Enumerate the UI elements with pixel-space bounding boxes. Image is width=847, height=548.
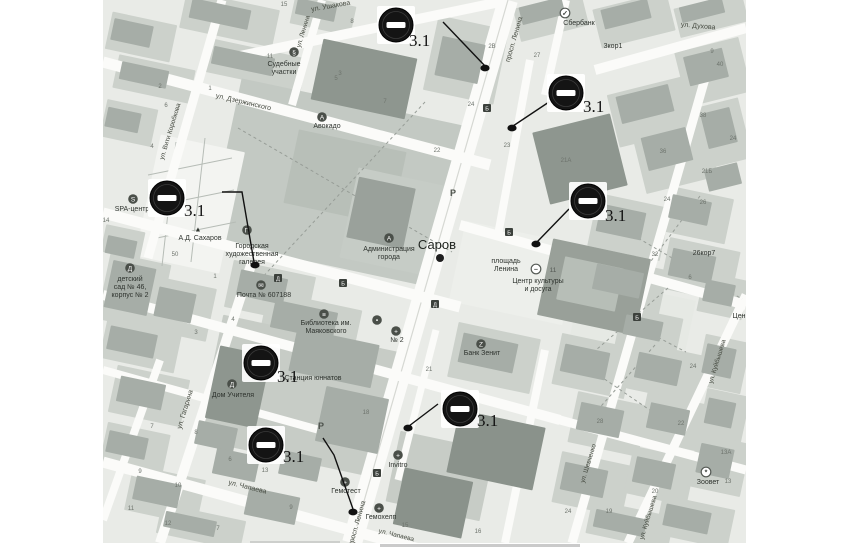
building-number: 10 xyxy=(175,483,182,489)
poi-label: Почта № 607188 xyxy=(237,292,291,299)
building-number: 13А xyxy=(721,450,732,456)
text: Д xyxy=(230,381,235,388)
poi-label: Администрация xyxy=(363,246,415,253)
building-number: 13 xyxy=(262,468,269,474)
building-number: 28 xyxy=(597,419,604,425)
poi-label: Библиотека им. xyxy=(301,319,352,327)
administration-icon: А xyxy=(384,233,394,243)
bus-stop-icon: Б xyxy=(483,104,491,112)
poi-lenin-square: площадьЛенина xyxy=(491,258,521,273)
text: Д xyxy=(276,276,280,282)
building-number: 22 xyxy=(434,148,441,154)
poi-label: Дом Учителя xyxy=(212,392,254,399)
building-number: 24 xyxy=(664,197,671,203)
poi-label: участки xyxy=(272,69,297,76)
text: ✓ xyxy=(562,11,568,18)
sign-bar xyxy=(158,195,177,201)
sign-bar xyxy=(451,406,470,412)
zoovet-icon: * xyxy=(701,467,711,477)
building-number: 24 xyxy=(730,136,737,142)
building-number: 20 xyxy=(652,489,659,495)
text: Б xyxy=(507,230,511,236)
scan-smudge xyxy=(380,544,580,547)
scanned-map-page: ул. Ушаковаул. Дзержинскогоул. Духовапро… xyxy=(0,0,847,548)
text: – xyxy=(534,267,538,274)
building-number: 21Б xyxy=(702,169,713,175)
building-number: 22 xyxy=(678,421,685,427)
poi-clipped-center: Цен xyxy=(733,313,746,320)
invitro-icon: + xyxy=(393,450,403,460)
poi-label: А.Д. Сахаров xyxy=(178,235,221,242)
sign-location-dot xyxy=(348,509,357,516)
avokado-icon: А xyxy=(317,112,327,122)
sign-number-label: 3.1 xyxy=(477,411,498,430)
building-number: 2В xyxy=(488,44,495,50)
poi-label: Судебные xyxy=(267,60,300,68)
sign-bar xyxy=(387,22,406,28)
scan-smudge xyxy=(250,541,340,543)
poi-label: корпус № 2 xyxy=(112,292,149,299)
building-number: 24 xyxy=(468,102,475,108)
building-number: 40 xyxy=(717,62,724,68)
text: § xyxy=(292,49,296,56)
poi-label: Гемохелп xyxy=(366,514,397,521)
sign-number-label: 3.1 xyxy=(283,447,304,466)
poi-label: сад № 46, xyxy=(114,284,147,291)
text: * xyxy=(705,470,708,477)
sign-location-dot xyxy=(480,65,489,72)
poi-number: 11 xyxy=(550,267,557,274)
poi-shop-dot: • xyxy=(372,315,382,325)
poi-label: 26кор7 xyxy=(693,250,716,257)
spa-icon: S xyxy=(128,194,138,204)
building-number: 15 xyxy=(281,2,288,8)
pharmacy-2-icon: + xyxy=(391,326,401,336)
bank-zenit-icon: Z xyxy=(476,339,486,349)
text: Д xyxy=(128,265,133,272)
city-dot xyxy=(436,254,444,262)
sign-location-dot xyxy=(403,425,412,432)
poi-label: детский xyxy=(117,275,142,283)
building-number: 15 xyxy=(402,523,409,529)
teachers-house-icon: Д xyxy=(227,379,237,389)
city-label: Саров xyxy=(418,237,456,252)
text: Z xyxy=(479,341,483,348)
building-number: 27 xyxy=(534,53,541,59)
sakharov-icon: ▲ xyxy=(195,227,202,234)
sign-location-dot xyxy=(250,262,259,269)
building-number: 21 xyxy=(426,367,433,373)
parking-icon: Р xyxy=(318,421,324,431)
text: + xyxy=(396,452,400,459)
text: ≡ xyxy=(322,311,326,318)
poi-label: 3кор1 xyxy=(604,43,623,50)
sign-location-dot xyxy=(531,241,540,248)
building-number: 21А xyxy=(561,158,572,164)
sign-number-label: 3.1 xyxy=(409,31,430,50)
sign-bar xyxy=(257,442,276,448)
bus-stop-icon: Д xyxy=(431,300,439,308)
kindergarten-icon: Д xyxy=(125,263,135,273)
text: А xyxy=(320,114,325,121)
text: + xyxy=(394,328,398,335)
poi-label: Invitro xyxy=(388,462,407,469)
building-number: 16 xyxy=(475,529,482,535)
building-number: 38 xyxy=(700,113,707,119)
building-number: 12 xyxy=(165,521,172,527)
text: А xyxy=(387,235,392,242)
text: Б xyxy=(635,315,639,321)
sign-bar xyxy=(579,198,598,204)
map-canvas: ул. Ушаковаул. Дзержинскогоул. Духовапро… xyxy=(0,0,847,548)
text: Б xyxy=(485,106,489,112)
post-office-icon: ✉ xyxy=(256,280,266,290)
sign-number-label: 3.1 xyxy=(184,201,205,220)
building-number: 24 xyxy=(565,509,572,515)
sberbank-icon: ✓ xyxy=(560,8,570,18)
building-number: 18 xyxy=(363,410,370,416)
poi-label: SPA-центр xyxy=(115,206,150,213)
text: S xyxy=(131,196,136,203)
building-number: 13 xyxy=(725,479,732,485)
poi-bldg-3kor1: 3кор1 xyxy=(604,43,623,50)
building-number: 36 xyxy=(660,149,667,155)
culture-center-icon: – xyxy=(531,264,541,274)
building-number: 11 xyxy=(267,54,274,60)
bus-stop-icon: Б xyxy=(505,228,513,236)
poi-bldg-26kor7: 26кор7 xyxy=(693,250,716,257)
parking-icon: Р xyxy=(450,188,456,198)
poi-label: Сбербанк xyxy=(563,19,595,27)
text: ▲ xyxy=(195,227,202,234)
sign-location-dot xyxy=(507,125,516,132)
bus-stop-icon: Б xyxy=(633,313,641,321)
poi-label: Банк Зенит xyxy=(464,350,501,357)
building-number: 14 xyxy=(103,218,110,224)
building-number: 23 xyxy=(504,143,511,149)
bus-stop-icon: Д xyxy=(274,274,282,282)
poi-label: Зоовет xyxy=(697,479,720,486)
sign-number-label: 3.1 xyxy=(277,367,298,386)
building-number: 24 xyxy=(690,364,697,370)
building-number: 11 xyxy=(128,506,135,512)
text: ✉ xyxy=(258,282,264,289)
bus-stop-icon: Б xyxy=(339,279,347,287)
building-number: 26 xyxy=(700,200,707,206)
poi-label: и досуга xyxy=(524,286,551,293)
sign-number-label: 3.1 xyxy=(583,97,604,116)
building-number: 19 xyxy=(606,509,613,515)
poi-label: Маяковского xyxy=(305,328,346,335)
gemohelp-icon: + xyxy=(374,503,384,513)
building-number: 50 xyxy=(172,252,179,258)
map-svg: ул. Ушаковаул. Дзержинскогоул. Духовапро… xyxy=(0,0,847,548)
text: Д xyxy=(433,302,437,308)
text: Б xyxy=(375,471,379,477)
bus-stop-icon: Б xyxy=(373,469,381,477)
building-number: 32 xyxy=(652,252,659,258)
sign-bar xyxy=(252,360,271,366)
poi-label: № 2 xyxy=(390,337,403,344)
court-icon: § xyxy=(289,47,299,57)
gallery-icon: П xyxy=(242,225,252,235)
poi-label: площадь xyxy=(491,258,521,265)
poi-label: Ленина xyxy=(494,266,518,273)
text: + xyxy=(377,505,381,512)
library-icon: ≡ xyxy=(319,309,329,319)
text: Б xyxy=(341,281,345,287)
poi-label: города xyxy=(378,254,400,261)
poi-label: Авокадо xyxy=(313,123,340,130)
poi-label: Цен xyxy=(733,313,746,320)
sign-number-label: 3.1 xyxy=(605,206,626,225)
shop-dot-icon: • xyxy=(372,315,382,325)
sign-bar xyxy=(557,90,576,96)
poi-label: Центр культуры xyxy=(512,278,563,285)
